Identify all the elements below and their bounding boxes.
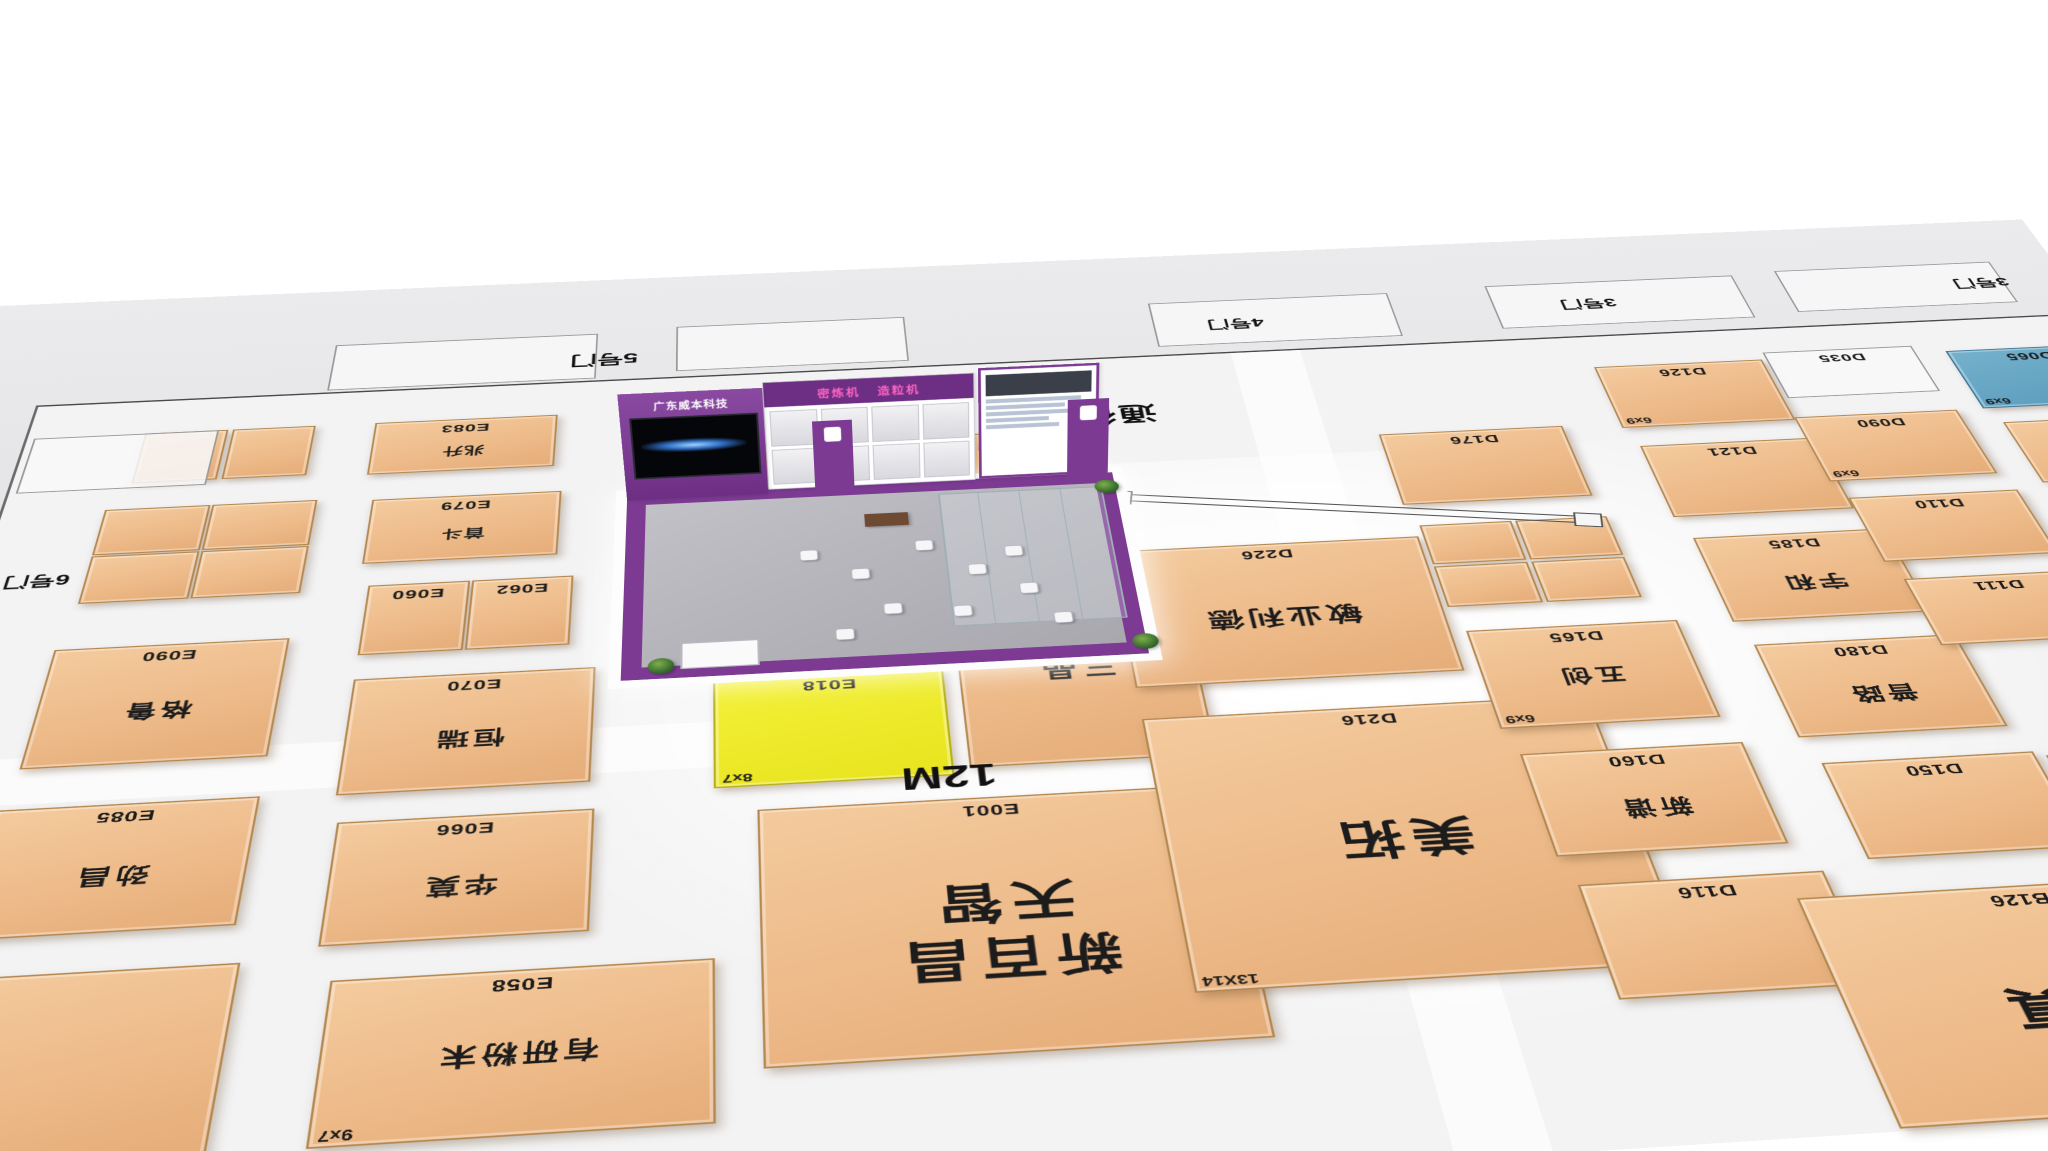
booth[interactable] [676,317,909,371]
booth-size: 6x9 [1983,396,2014,407]
product-label-1: 密炼机 [817,383,861,400]
booth-id: E016 [1036,570,1090,586]
ground-plane: E090格鲁E085劲昌E083兆升E079首斗E060E062E070恒瑞E0… [0,219,2048,1151]
gate-label: 3号门 [1557,295,1620,313]
booth-id: D110 [1911,496,1967,511]
booth-back-wall-posters: 密炼机 造粒机 [762,373,976,490]
booth-company-name: 首斗 [440,525,486,542]
booth-size-label: 8x5 [675,584,701,595]
booth-id: E079 [440,497,492,512]
gate-label: 5号门 [570,349,639,372]
booth-id: D035 [1815,351,1868,364]
booth-id: D121 [1705,444,1760,458]
booth-id: E020 [802,576,855,592]
booth-totem-sign [1067,398,1109,479]
booth-id: D111 [1969,577,2027,593]
product-label-2: 造粒机 [877,380,920,397]
booth-id: E083 [441,421,491,435]
booth-id: D065 [2003,349,2048,362]
booth-id: D176 [1447,432,1500,446]
company-name: 广东威本科技 [618,394,764,415]
booth-id: E062 [495,580,549,596]
gate-label: 3号门 [1949,274,2014,292]
gate-label: 4号门 [1205,315,1266,334]
booth-id: D090 [1853,415,1908,429]
booth-company-name: 敏业利德 [1202,599,1366,633]
booth[interactable] [1148,293,1403,347]
booth-company-name: 兆升 [441,442,485,458]
booth[interactable] [1484,275,1755,328]
booth-id: E060 [391,585,445,601]
booth-id: D226 [1239,546,1294,562]
booth-id: D126 [1656,365,1708,378]
led-screen [629,413,761,480]
booth-size: 6x9 [1830,468,1861,479]
booth-back-wall-left: 广东威本科技 [617,388,768,501]
booth-company-name: 宇和 [1776,569,1852,593]
booth-id: D185 [1765,535,1823,551]
exhibition-floorplan-view: E090格鲁E085劲昌E083兆升E079首斗E060E062E070恒瑞E0… [0,0,2048,1151]
gate-label: 6号门 [0,570,73,594]
booth-id: E031 [804,442,853,456]
booth-size: 6x9 [1624,415,1654,426]
booth-company-name: 金轮 [796,608,865,633]
